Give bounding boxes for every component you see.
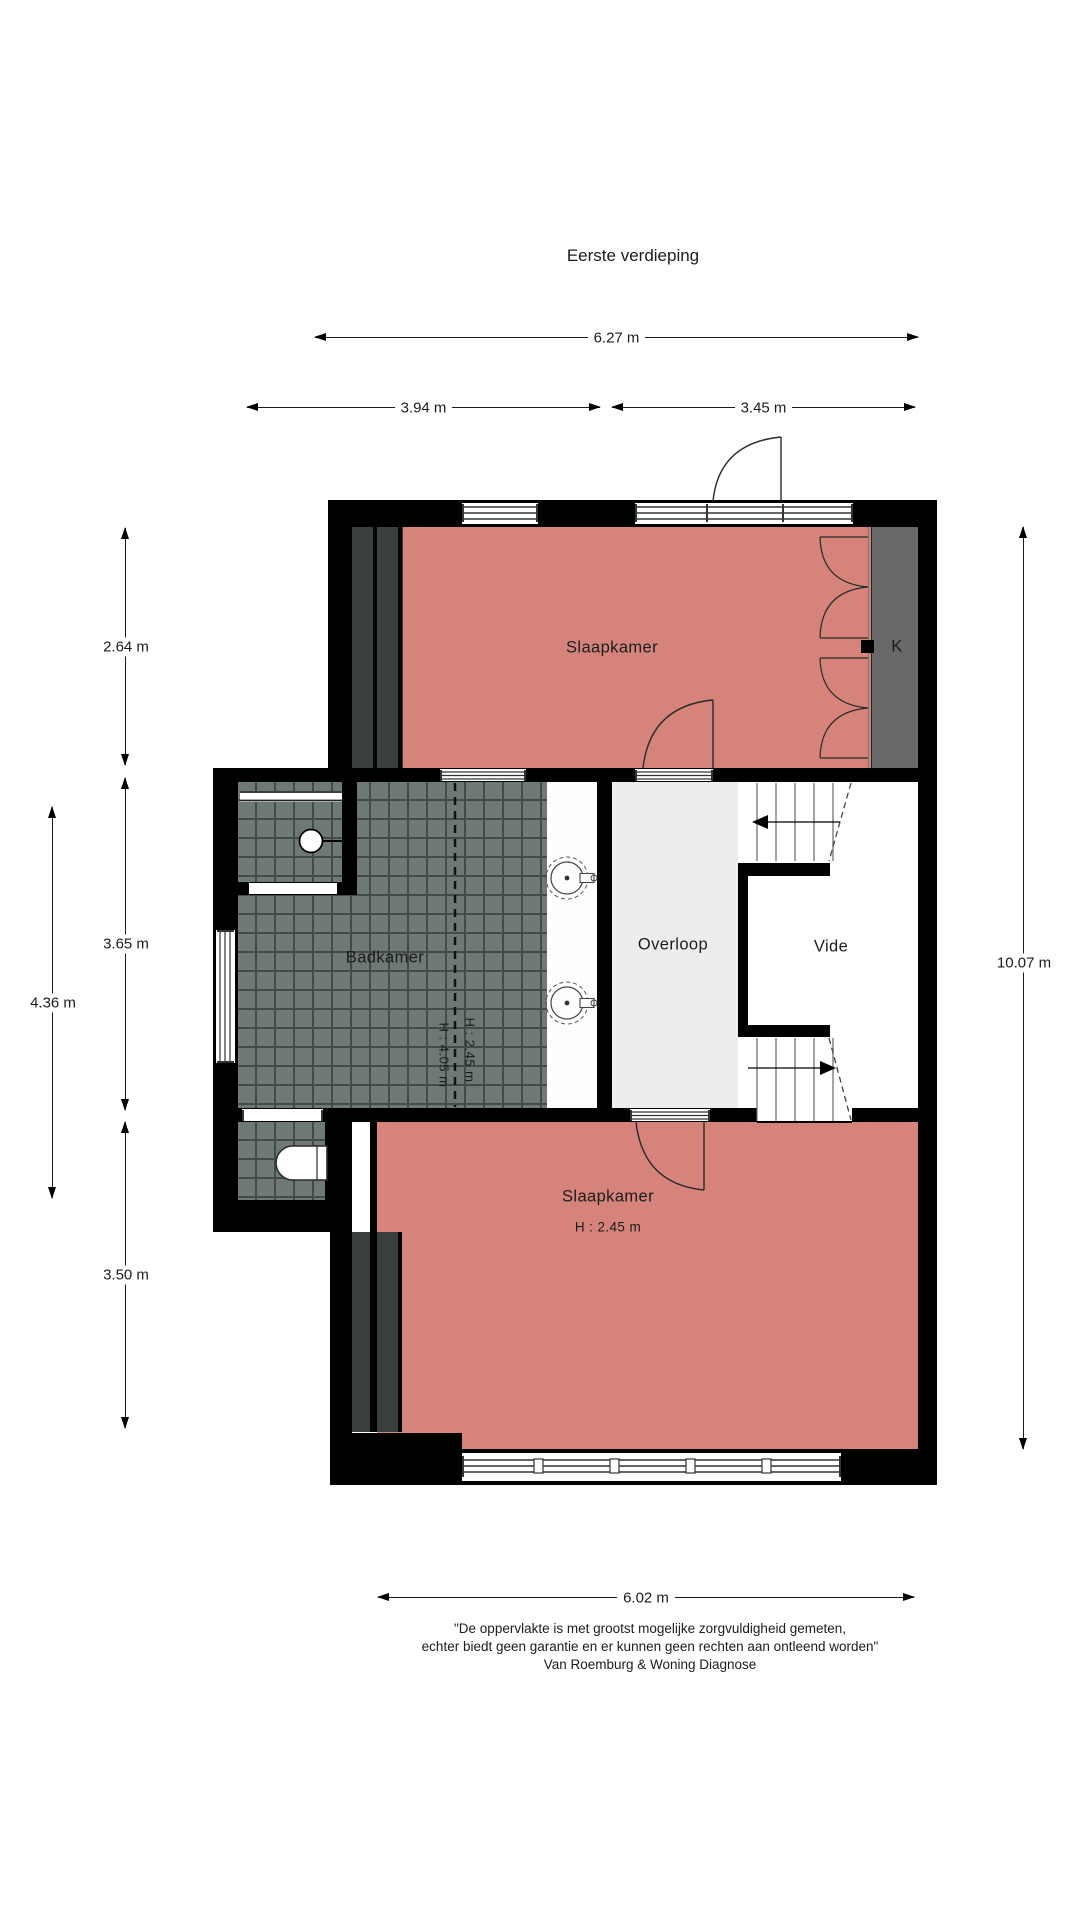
sloped-roof-hatch-bottom-2: [377, 1232, 402, 1432]
opening-shower: [249, 883, 337, 894]
door-opening-toilet: [242, 1109, 323, 1121]
bathroom-vanity-counter: [547, 782, 597, 1108]
dimension-bottom-total: 6.02 m: [378, 1597, 914, 1598]
wall-void-bottom: [852, 1108, 918, 1122]
wall-bottomright-block: [841, 1449, 937, 1485]
window-left-wall: [216, 930, 235, 1063]
dimension-top-total: 6.27 m: [315, 337, 918, 338]
wall-shower-right: [342, 782, 357, 895]
wall-bedroombottom-left: [330, 1122, 352, 1485]
label-closet: K: [891, 638, 902, 657]
wall-stair-lower: [738, 1025, 830, 1037]
wall-right: [918, 500, 937, 1485]
label-bathroom-height-low: H : 2.45 m: [463, 1018, 478, 1083]
dimension-top-left: 3.94 m: [247, 407, 600, 408]
wall-bedroomtop-left: [328, 500, 352, 782]
page-title: Eerste verdieping: [567, 246, 699, 266]
label-bedroom-bottom-height: H : 2.45 m: [575, 1220, 641, 1235]
wall-bottomleft-block: [330, 1433, 462, 1485]
window-top-left: [462, 503, 538, 524]
dimension-side-mid: 3.65 m: [125, 778, 126, 1110]
disclaimer: "De oppervlakte is met grootst mogelijke…: [350, 1620, 950, 1674]
disclaimer-line-1: "De oppervlakte is met grootst mogelijke…: [350, 1620, 950, 1638]
window-bottom: [462, 1453, 841, 1481]
window-bathroom-internal: [440, 769, 526, 781]
sloped-roof-hatch-bottom-1: [352, 1232, 370, 1432]
label-bathroom: Badkamer: [346, 949, 424, 968]
wall-stair-upper: [738, 863, 830, 876]
wall-below-toilet: [213, 1200, 345, 1232]
window-top-right: [635, 503, 853, 524]
dimension-side-bottom: 3.50 m: [125, 1122, 126, 1428]
wall-thin-divider: [370, 1122, 377, 1432]
dimension-side-top: 2.64 m: [125, 528, 126, 765]
wall-void-left: [738, 876, 748, 1025]
label-bedroom-bottom: Slaapkamer: [562, 1188, 654, 1207]
label-bathroom-height-high: H : 4.05 m: [437, 1023, 452, 1088]
disclaimer-line-3: Van Roemburg & Woning Diagnose: [350, 1656, 950, 1674]
room-toilet: [238, 1122, 325, 1200]
label-bedroom-top: Slaapkamer: [566, 639, 658, 658]
wall-landing-left: [597, 768, 612, 1122]
sloped-roof-hatch-top: [352, 527, 403, 768]
label-landing: Overloop: [638, 936, 708, 955]
dimension-side-outer: 4.36 m: [52, 807, 53, 1198]
disclaimer-line-2: echter biedt geen garantie en er kunnen …: [350, 1638, 950, 1656]
floorplan-page: Eerste verdieping: [0, 0, 1080, 1920]
dimension-top-right: 3.45 m: [612, 407, 915, 408]
label-void: Vide: [814, 938, 848, 957]
dimension-right-total: 10.07 m: [1023, 527, 1024, 1449]
door-opening-bedroom-top: [635, 769, 713, 781]
room-bedroom-bottom: [377, 1122, 918, 1449]
door-opening-bedroom-bottom: [630, 1109, 710, 1121]
wall-mid-horizontal: [213, 768, 918, 782]
door-swing-top: [713, 437, 781, 501]
room-bathroom: [238, 782, 547, 1108]
